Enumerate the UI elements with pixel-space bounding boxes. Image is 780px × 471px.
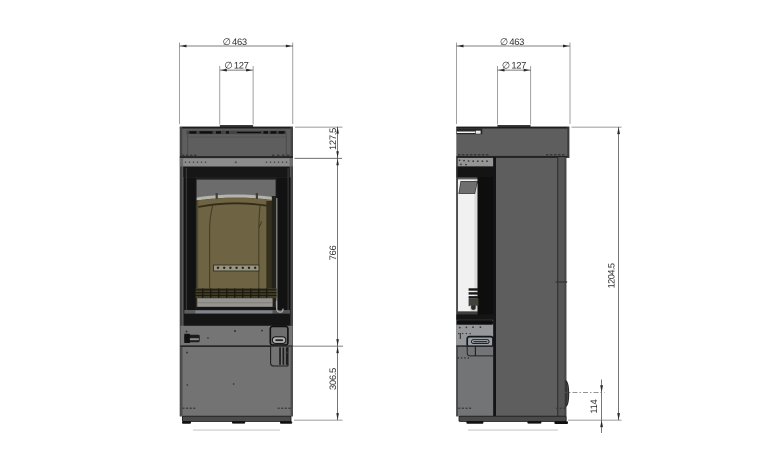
svg-text:127.5: 127.5 — [327, 128, 338, 150]
svg-text:∅ 127: ∅ 127 — [224, 60, 248, 71]
svg-text:∅ 127: ∅ 127 — [502, 60, 526, 71]
svg-text:766: 766 — [327, 246, 338, 261]
svg-text:306.5: 306.5 — [327, 368, 338, 390]
svg-text:∅ 463: ∅ 463 — [500, 36, 524, 47]
svg-text:∅ 463: ∅ 463 — [223, 36, 247, 47]
svg-text:114: 114 — [588, 399, 599, 413]
svg-text:1204.5: 1204.5 — [607, 263, 617, 288]
